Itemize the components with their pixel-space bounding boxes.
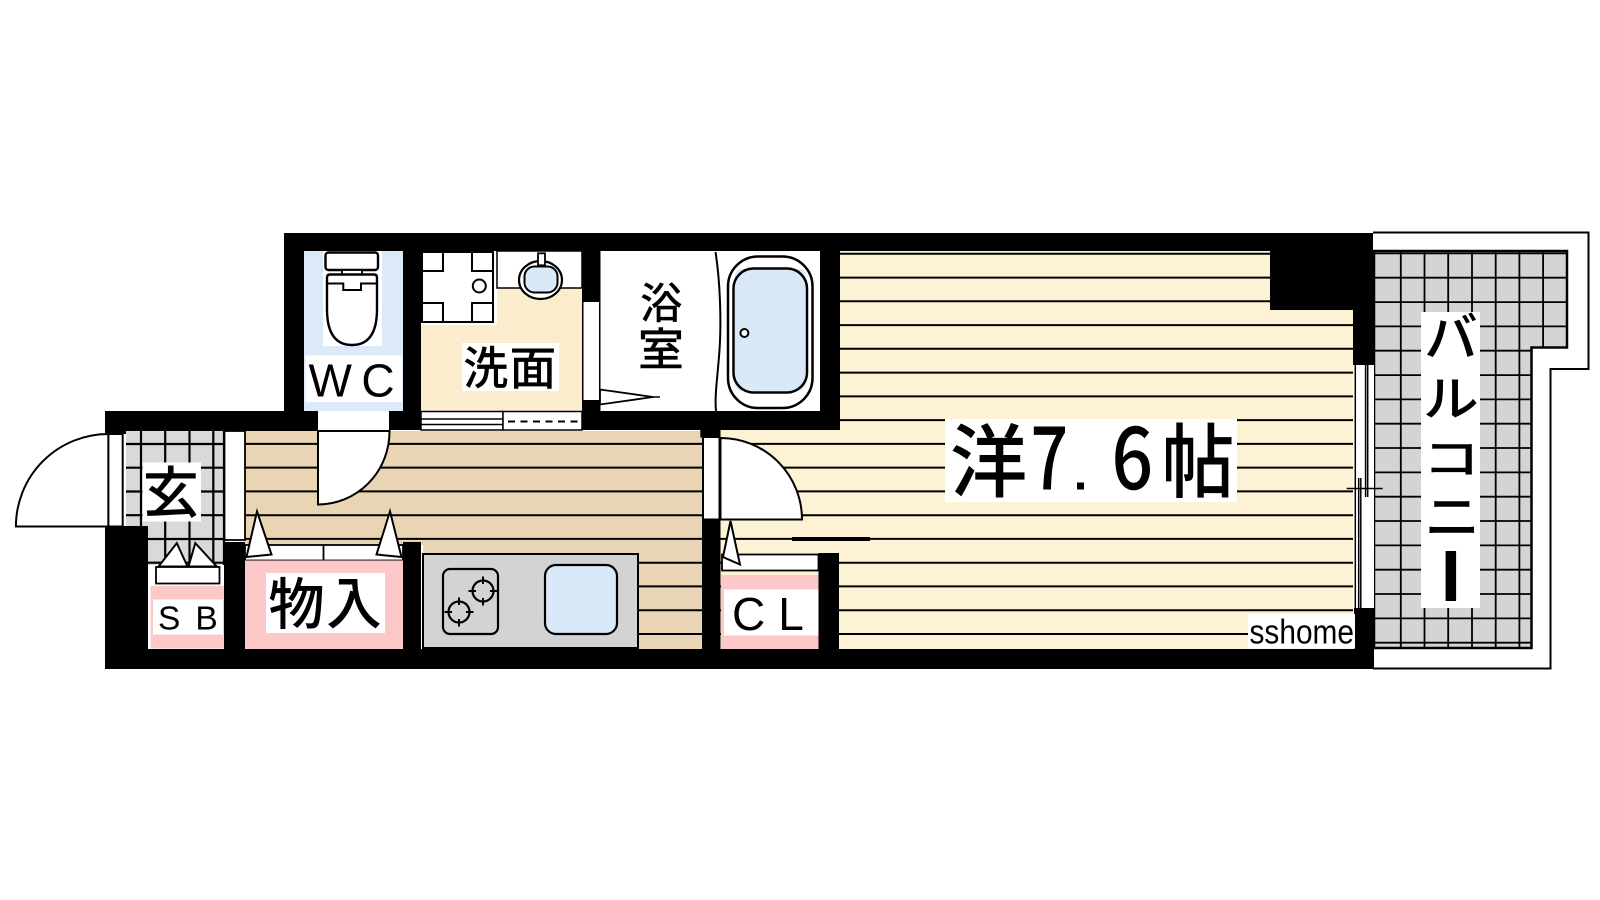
svg-text:CL: CL [732,588,817,640]
svg-text:WC: WC [309,355,405,407]
svg-text:SB: SB [158,601,233,638]
svg-text:sshome: sshome [1250,614,1355,652]
